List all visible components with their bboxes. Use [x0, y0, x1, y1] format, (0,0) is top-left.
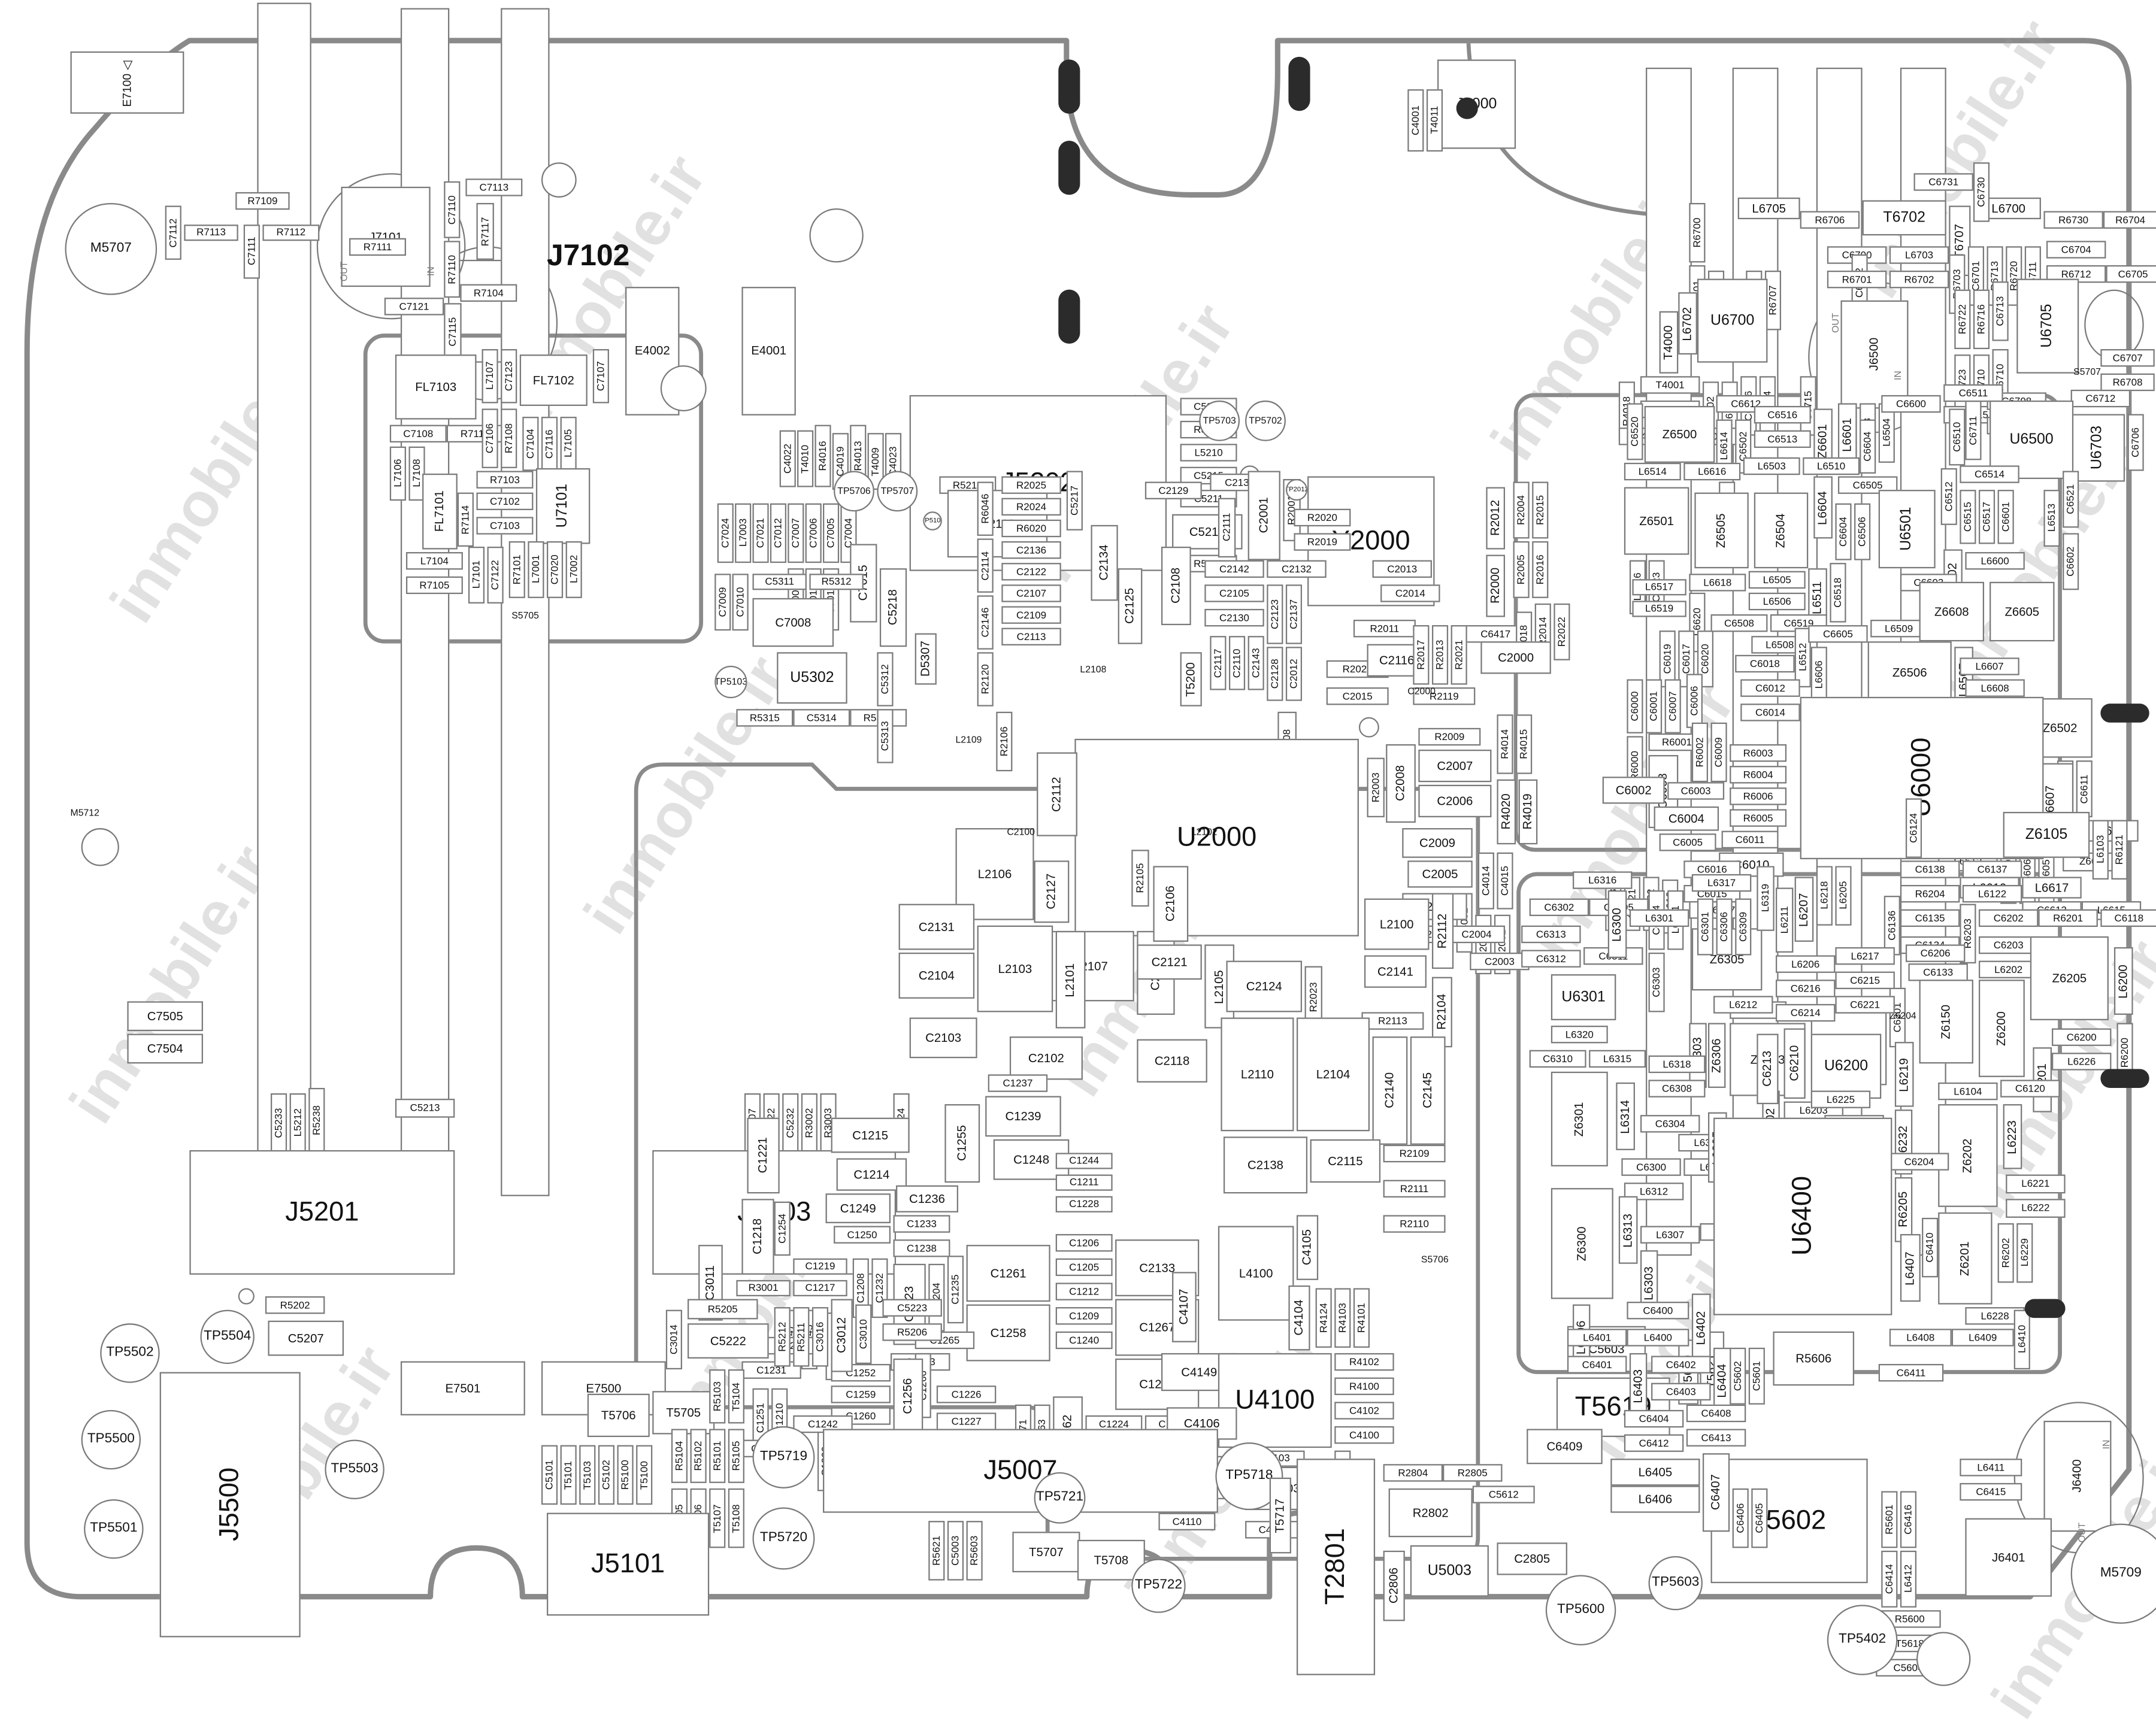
- component-l2103: L2103: [977, 926, 1053, 1012]
- component-c6004: C6004: [1654, 807, 1719, 831]
- component-c6012: C6012: [1740, 679, 1800, 696]
- board-cutout: [1456, 98, 1478, 119]
- component-c6310: C6310: [1530, 1050, 1586, 1068]
- component-t4010: T4010: [797, 431, 813, 487]
- component-c1215: C1215: [831, 1118, 910, 1153]
- component-r7105: R7105: [406, 577, 463, 594]
- component-c1258: C1258: [967, 1305, 1050, 1362]
- component-r7112: R7112: [262, 225, 319, 241]
- component-c3014: C3014: [666, 1310, 682, 1369]
- component-c7121: C7121: [384, 298, 444, 315]
- component-c2129: C2129: [1145, 482, 1202, 499]
- component-s5705: S5705: [511, 611, 539, 621]
- component-r7114: R7114: [458, 493, 474, 547]
- component-c1233: C1233: [894, 1215, 950, 1232]
- component-c2006: C2006: [1418, 785, 1491, 817]
- component-r6700: R6700: [1689, 203, 1705, 262]
- component-c1228: C1228: [1056, 1196, 1113, 1212]
- component-c4102: C4102: [1334, 1402, 1394, 1419]
- component-l2110: L2110: [1221, 1017, 1294, 1131]
- component-fl7103: FL7103: [395, 354, 477, 419]
- board-cutout: [1058, 141, 1080, 195]
- component-l6401: L6401: [1567, 1329, 1627, 1346]
- component-c6712: C6712: [2071, 390, 2130, 407]
- component-c6706: C6706: [2128, 414, 2144, 471]
- component-fl7102: FL7102: [520, 354, 588, 406]
- component-l6410: L6410: [2014, 1310, 2030, 1369]
- component-l7105: L7105: [561, 417, 577, 471]
- component-c7116: C7116: [541, 417, 558, 471]
- component-t5104: T5104: [728, 1369, 744, 1423]
- component-c7021: C7021: [753, 504, 769, 563]
- component-c6213: C6213: [1757, 1034, 1778, 1105]
- component-s5707: S5707: [2073, 368, 2101, 378]
- component-r7111: R7111: [349, 238, 406, 256]
- component-c6308: C6308: [1649, 1080, 1706, 1097]
- component-c6513: C6513: [1754, 431, 1811, 448]
- component-l7104: L7104: [406, 552, 463, 569]
- component-c7106: C7106: [482, 408, 498, 468]
- testpoint-tp5706: TP5706: [834, 471, 874, 511]
- component-c1240: C1240: [1056, 1332, 1113, 1349]
- component-e7100: E7100△: [71, 51, 184, 114]
- component-c2146: C2146: [977, 595, 994, 649]
- component-l5210: L5210: [1180, 444, 1237, 461]
- module-z6105: Z6105: [2003, 812, 2090, 858]
- component-l6407: L6407: [1900, 1234, 1921, 1302]
- component-c2138: C2138: [1224, 1136, 1307, 1193]
- mounting-hole: [541, 162, 577, 198]
- component-c4022: C4022: [780, 431, 796, 487]
- component-l7002: L7002: [566, 541, 582, 598]
- component-r2009: R2009: [1418, 728, 1480, 745]
- mounting-hole: [1359, 717, 1379, 738]
- component-c7024: C7024: [717, 504, 734, 563]
- component-l6510: L6510: [1803, 457, 1860, 475]
- component-c1212: C1212: [1056, 1283, 1113, 1300]
- testpoint-tp5104: TP5104: [923, 511, 942, 530]
- component-c6000: C6000: [1627, 679, 1643, 733]
- component-c6302: C6302: [1530, 899, 1589, 916]
- component-c7010: C7010: [732, 574, 749, 630]
- component-r2012: R2012: [1486, 487, 1505, 550]
- module-u6501: U6501: [1879, 490, 1936, 568]
- component-c6704: C6704: [2046, 241, 2106, 258]
- component-r5103: R5103: [709, 1369, 725, 1423]
- component-c5223: C5223: [882, 1299, 941, 1317]
- component-j6401: J6401: [1965, 1518, 2052, 1597]
- component-c1250: C1250: [834, 1226, 891, 1243]
- module-u5003: U5003: [1410, 1545, 1489, 1597]
- component-c1249: C1249: [826, 1193, 891, 1223]
- component-r6020: R6020: [1001, 520, 1061, 537]
- component-r4020: R4020: [1497, 780, 1516, 844]
- component-r5601: R5601: [1881, 1491, 1897, 1548]
- component-c6206: C6206: [1906, 944, 1965, 962]
- mounting-hole: [1916, 1632, 1970, 1685]
- testpoint-tp5501: TP5501: [84, 1499, 143, 1559]
- component-l6404: L6404: [1713, 1348, 1731, 1412]
- component-c6401: C6401: [1567, 1356, 1627, 1373]
- pin-direction-label: OUT: [1830, 306, 1843, 341]
- component-z6301: Z6301: [1551, 1072, 1608, 1166]
- module-u6200: U6200: [1811, 1034, 1882, 1099]
- component-r2805: R2805: [1443, 1464, 1502, 1481]
- component-c2137: C2137: [1286, 584, 1302, 644]
- component-c2112: C2112: [1037, 753, 1077, 836]
- component-c7108: C7108: [390, 425, 447, 442]
- testpoint-tp5504: TP5504: [200, 1310, 254, 1364]
- component-r2017: R2017: [1413, 625, 1429, 684]
- component-l6406: L6406: [1610, 1486, 1700, 1512]
- component-c6604: C6604: [1835, 504, 1851, 560]
- component-r6121: R6121: [2111, 820, 2127, 879]
- component-c6120: C6120: [2000, 1080, 2060, 1097]
- component-l7107: L7107: [482, 349, 498, 403]
- component-e7101: E7101△: [257, 3, 311, 1192]
- component-l6513: L6513: [2043, 490, 2060, 547]
- component-c3010: C3010: [855, 1305, 871, 1364]
- component-c2003: C2003: [1470, 953, 1529, 970]
- module-j5101: J5101: [547, 1513, 709, 1616]
- component-l6517: L6517: [1632, 579, 1686, 595]
- component-c6309: C6309: [1735, 899, 1751, 956]
- component-c6400: C6400: [1627, 1302, 1689, 1319]
- component-l6200: L6200: [2114, 947, 2133, 1015]
- component-r5603: R5603: [967, 1521, 983, 1580]
- component-l6103: L6103: [2093, 820, 2109, 879]
- component-c7111: C7111: [244, 225, 260, 278]
- component-r2105: R2105: [1131, 850, 1149, 907]
- component-l6506: L6506: [1749, 593, 1806, 610]
- component-c6221: C6221: [1835, 996, 1894, 1013]
- component-l6601: L6601: [1838, 403, 1857, 465]
- component-c4015: C4015: [1497, 853, 1513, 910]
- component-c7012: C7012: [770, 504, 786, 563]
- board-cutout: [2100, 704, 2149, 723]
- testpoint-tp5603: TP5603: [1649, 1556, 1703, 1610]
- component-c6415: C6415: [1960, 1483, 2022, 1500]
- component-l6409: L6409: [1952, 1329, 2014, 1346]
- component-r2802: R2802: [1389, 1489, 1473, 1537]
- component-c6707: C6707: [2100, 349, 2154, 366]
- component-r6006: R6006: [1730, 787, 1786, 805]
- component-c5213: C5213: [395, 1099, 455, 1118]
- component-c5233: C5233: [271, 1093, 287, 1153]
- component-r5312: R5312: [809, 574, 863, 590]
- module-t6702: T6702: [1863, 200, 1946, 235]
- module-j5500: J5500: [160, 1372, 301, 1638]
- component-c2141: C2141: [1364, 955, 1427, 987]
- component-t5108: T5108: [728, 1489, 744, 1548]
- component-c6313: C6313: [1521, 926, 1580, 943]
- component-c6730: C6730: [1973, 162, 1990, 222]
- component-l6705: L6705: [1738, 198, 1800, 219]
- component-l2109: L2109: [955, 736, 982, 745]
- component-r4019: R4019: [1519, 780, 1538, 844]
- component-c6605: C6605: [1808, 625, 1867, 642]
- component-r6201: R6201: [2038, 910, 2097, 927]
- component-c2013: C2013: [1373, 560, 1432, 578]
- component-l6606: L6606: [1811, 647, 1827, 704]
- component-z6605: Z6605: [1990, 582, 2054, 641]
- component-l6207: L6207: [1795, 877, 1814, 941]
- component-c6133: C6133: [1908, 963, 1967, 981]
- component-c1254: C1254: [774, 1202, 791, 1256]
- component-z6150: Z6150: [1919, 980, 1973, 1063]
- component-r6708: R6708: [2100, 374, 2154, 391]
- component-l6202: L6202: [1979, 961, 2038, 978]
- component-r2013: R2013: [1432, 625, 1448, 684]
- component-r6706: R6706: [1800, 211, 1860, 229]
- component-l6703: L6703: [1889, 246, 1949, 263]
- component-c1255: C1255: [944, 1104, 980, 1183]
- component-l6320: L6320: [1551, 1026, 1608, 1043]
- component-c6508: C6508: [1711, 614, 1768, 632]
- component-c6604: C6604: [1860, 420, 1876, 474]
- component-m5707: M5707: [65, 203, 157, 295]
- component-c6215: C6215: [1835, 972, 1894, 989]
- component-l6616: L6616: [1683, 463, 1740, 480]
- component-r6722: R6722: [1954, 290, 1970, 349]
- component-z6205: Z6205: [2030, 936, 2109, 1020]
- component-d5307: D5307: [915, 633, 937, 685]
- testpoint-tp5500: TP5500: [81, 1410, 141, 1469]
- component-c6216: C6216: [1776, 980, 1835, 997]
- component-t5100: T5100: [636, 1445, 652, 1505]
- module-j5007: J5007: [823, 1429, 1218, 1512]
- testpoint-tp5402: TP5402: [1827, 1605, 1898, 1675]
- component-j7101: J7101: [341, 187, 430, 287]
- component-c6520: C6520: [1627, 403, 1643, 460]
- component-l6503: L6503: [1743, 457, 1800, 475]
- component-c6514: C6514: [1960, 465, 2019, 483]
- component-c6731: C6731: [1913, 173, 1973, 190]
- component-r2106: R2106: [996, 712, 1012, 771]
- module-u5302: U5302: [777, 652, 847, 704]
- component-c7113: C7113: [465, 178, 522, 196]
- component-c6711: C6711: [1965, 401, 1981, 460]
- component-r5102: R5102: [691, 1429, 707, 1483]
- component-r6701: R6701: [1827, 271, 1886, 288]
- component-m5712: M5712: [71, 809, 99, 818]
- component-c6410: C6410: [1922, 1218, 1938, 1277]
- component-l6618: L6618: [1689, 574, 1746, 591]
- component-l6316: L6316: [1573, 871, 1632, 889]
- pin-direction-label: OUT: [338, 254, 352, 290]
- testpoint-tp5720: TP5720: [753, 1508, 815, 1570]
- component-c2107: C2107: [1001, 584, 1061, 602]
- component-c7110: C7110: [444, 181, 460, 238]
- component-c4105: C4105: [1297, 1215, 1318, 1280]
- testpoint-tp5703: TP5703: [1199, 401, 1240, 441]
- component-r5206: R5206: [882, 1323, 941, 1341]
- component-c1227: C1227: [937, 1412, 996, 1430]
- component-z6500: Z6500: [1645, 406, 1715, 463]
- component-c5207: C5207: [268, 1321, 344, 1356]
- component-c2128: C2128: [1267, 647, 1283, 701]
- component-c1211: C1211: [1056, 1175, 1113, 1191]
- component-r5100: R5100: [617, 1445, 634, 1505]
- component-c5313: C5313: [877, 709, 893, 763]
- component-c2127: C2127: [1034, 860, 1070, 923]
- component-l6600: L6600: [1965, 552, 2024, 569]
- component-c6136: C6136: [1884, 896, 1900, 955]
- component-l6212: L6212: [1713, 996, 1773, 1013]
- component-c2136: C2136: [1001, 541, 1061, 559]
- component-r6716: R6716: [1973, 290, 1990, 349]
- component-z6506: Z6506: [1868, 641, 1952, 704]
- component-t5103: T5103: [579, 1445, 595, 1505]
- component-l6412: L6412: [1900, 1551, 1916, 1608]
- board-cutout: [2100, 1069, 2149, 1088]
- board-cutout: [1288, 57, 1310, 111]
- component-l6702: L6702: [1678, 292, 1697, 354]
- component-c2122: C2122: [1001, 563, 1061, 580]
- component-l2102: L2102: [1191, 828, 1218, 838]
- component-r6003: R6003: [1730, 744, 1786, 762]
- component-c6202: C6202: [1979, 910, 2038, 927]
- component-c7006: C7006: [806, 504, 822, 563]
- component-c7112: C7112: [165, 206, 181, 260]
- component-t5705: T5705: [652, 1391, 714, 1434]
- component-l6317: L6317: [1692, 874, 1751, 892]
- component-l6211: L6211: [1776, 887, 1793, 952]
- component-r2015: R2015: [1532, 482, 1548, 539]
- component-c2140: C2140: [1373, 1036, 1408, 1145]
- component-c6006: C6006: [1686, 674, 1703, 727]
- component-r2110: R2110: [1383, 1215, 1446, 1232]
- component-c6018: C6018: [1735, 655, 1794, 672]
- component-c3016: C3016: [812, 1307, 828, 1366]
- component-c6204: C6204: [1889, 1153, 1949, 1170]
- component-c2130: C2130: [1204, 609, 1264, 626]
- component-l6400: L6400: [1627, 1329, 1689, 1346]
- component-r2111: R2111: [1383, 1180, 1446, 1198]
- component-c6118: C6118: [2100, 910, 2156, 927]
- component-c2125: C2125: [1118, 568, 1143, 644]
- component-c7008: C7008: [753, 598, 834, 647]
- component-c5602: C5602: [1730, 1348, 1746, 1405]
- component-c1261: C1261: [967, 1245, 1050, 1302]
- component-c2000: C2000: [1407, 687, 1436, 697]
- testpoint-tp5600: TP5600: [1546, 1575, 1616, 1646]
- component-c2132: C2132: [1267, 560, 1326, 578]
- module-u6400: U6400: [1713, 1118, 1892, 1315]
- component-r4016: R4016: [814, 425, 831, 487]
- component-c1206: C1206: [1056, 1234, 1113, 1251]
- component-c7020: C7020: [547, 541, 563, 598]
- component-c6601: C6601: [1998, 490, 2014, 544]
- component-c2001: C2001: [1248, 471, 1280, 560]
- component-l6411: L6411: [1960, 1459, 2022, 1476]
- component-r6004: R6004: [1730, 766, 1786, 783]
- component-r7113: R7113: [184, 225, 238, 241]
- component-t5107: T5107: [709, 1489, 725, 1548]
- component-l6505: L6505: [1749, 571, 1806, 589]
- component-l7106: L7106: [390, 447, 406, 501]
- component-l6408: L6408: [1889, 1329, 1952, 1346]
- component-c2108: C2108: [1161, 547, 1191, 625]
- component-r4014: R4014: [1497, 714, 1513, 774]
- component-l6607: L6607: [1960, 657, 2019, 675]
- component-r4102: R4102: [1334, 1353, 1394, 1371]
- component-c7009: C7009: [714, 574, 731, 630]
- testpoint-tp5503: TP5503: [325, 1440, 384, 1499]
- component-r2025: R2025: [1001, 476, 1061, 493]
- component-c1236: C1236: [896, 1186, 958, 1212]
- component-l6218: L6218: [1816, 866, 1833, 925]
- component-z6200: Z6200: [1979, 980, 2025, 1077]
- pcb-layout-diagram: inmobile.irinmobile.irinmobile.irinmobil…: [0, 0, 2156, 1618]
- component-r5104: R5104: [671, 1429, 688, 1483]
- module-u6301: U6301: [1551, 974, 1616, 1020]
- component-c5312: C5312: [877, 652, 893, 706]
- component-c2110: C2110: [1229, 636, 1245, 690]
- component-r2022: R2022: [1554, 604, 1570, 660]
- component-c6300: C6300: [1621, 1158, 1680, 1175]
- component-c7505: C7505: [127, 1001, 203, 1031]
- component-z6300: Z6300: [1551, 1188, 1613, 1299]
- component-c6203: C6203: [1979, 936, 2038, 954]
- component-r5621: R5621: [928, 1521, 944, 1580]
- component-c4104: C4104: [1288, 1286, 1310, 1350]
- component-c2111: C2111: [1218, 498, 1236, 557]
- component-c3012: C3012: [831, 1299, 853, 1372]
- component-s5706: S5706: [1421, 1256, 1449, 1265]
- component-c2007: C2007: [1418, 750, 1491, 782]
- component-c7007: C7007: [788, 504, 804, 563]
- component-c7103: C7103: [476, 517, 533, 534]
- pin-direction-label: IN: [425, 254, 439, 290]
- testpoint-tp5721: TP5721: [1034, 1472, 1086, 1524]
- component-r4101: R4101: [1353, 1288, 1370, 1347]
- component-c2115: C2115: [1310, 1139, 1381, 1183]
- component-r5606: R5606: [1773, 1332, 1854, 1386]
- component-c5003: C5003: [947, 1521, 964, 1580]
- component-l6300: L6300: [1608, 890, 1627, 958]
- component-c6521: C6521: [2063, 471, 2079, 528]
- component-r2020: R2020: [1294, 509, 1350, 526]
- component-r5202: R5202: [265, 1296, 325, 1314]
- module-u6705: U6705: [2016, 279, 2079, 374]
- component-c6611: C6611: [2076, 760, 2093, 817]
- component-r7108: R7108: [501, 408, 517, 468]
- component-r3002: R3002: [801, 1093, 817, 1153]
- component-e4001: E4001: [741, 287, 795, 416]
- component-c2134: C2134: [1091, 525, 1118, 601]
- testpoint-tp5103: TP5103: [714, 666, 747, 698]
- component-c6304: C6304: [1640, 1115, 1700, 1132]
- component-r6205: R6205: [1895, 1177, 1912, 1242]
- component-c6011: C6011: [1722, 831, 1779, 848]
- component-l6318: L6318: [1649, 1056, 1706, 1073]
- component-r2011: R2011: [1353, 620, 1416, 637]
- component-c2102: C2102: [1010, 1036, 1083, 1080]
- component-z6306: Z6306: [1708, 1023, 1725, 1087]
- component-c6009: C6009: [1711, 723, 1727, 782]
- component-c6200: C6200: [2052, 1029, 2111, 1046]
- component-l6223: L6223: [2003, 1104, 2022, 1169]
- component-r2000: R2000: [1486, 555, 1505, 617]
- component-c1238: C1238: [894, 1239, 950, 1257]
- component-c2105: C2105: [1204, 584, 1264, 602]
- component-c6403: C6403: [1651, 1383, 1710, 1400]
- component-c7115: C7115: [444, 303, 461, 360]
- component-l2108: L2108: [1080, 666, 1106, 675]
- component-c7122: C7122: [487, 547, 504, 604]
- component-c7104: C7104: [522, 417, 538, 471]
